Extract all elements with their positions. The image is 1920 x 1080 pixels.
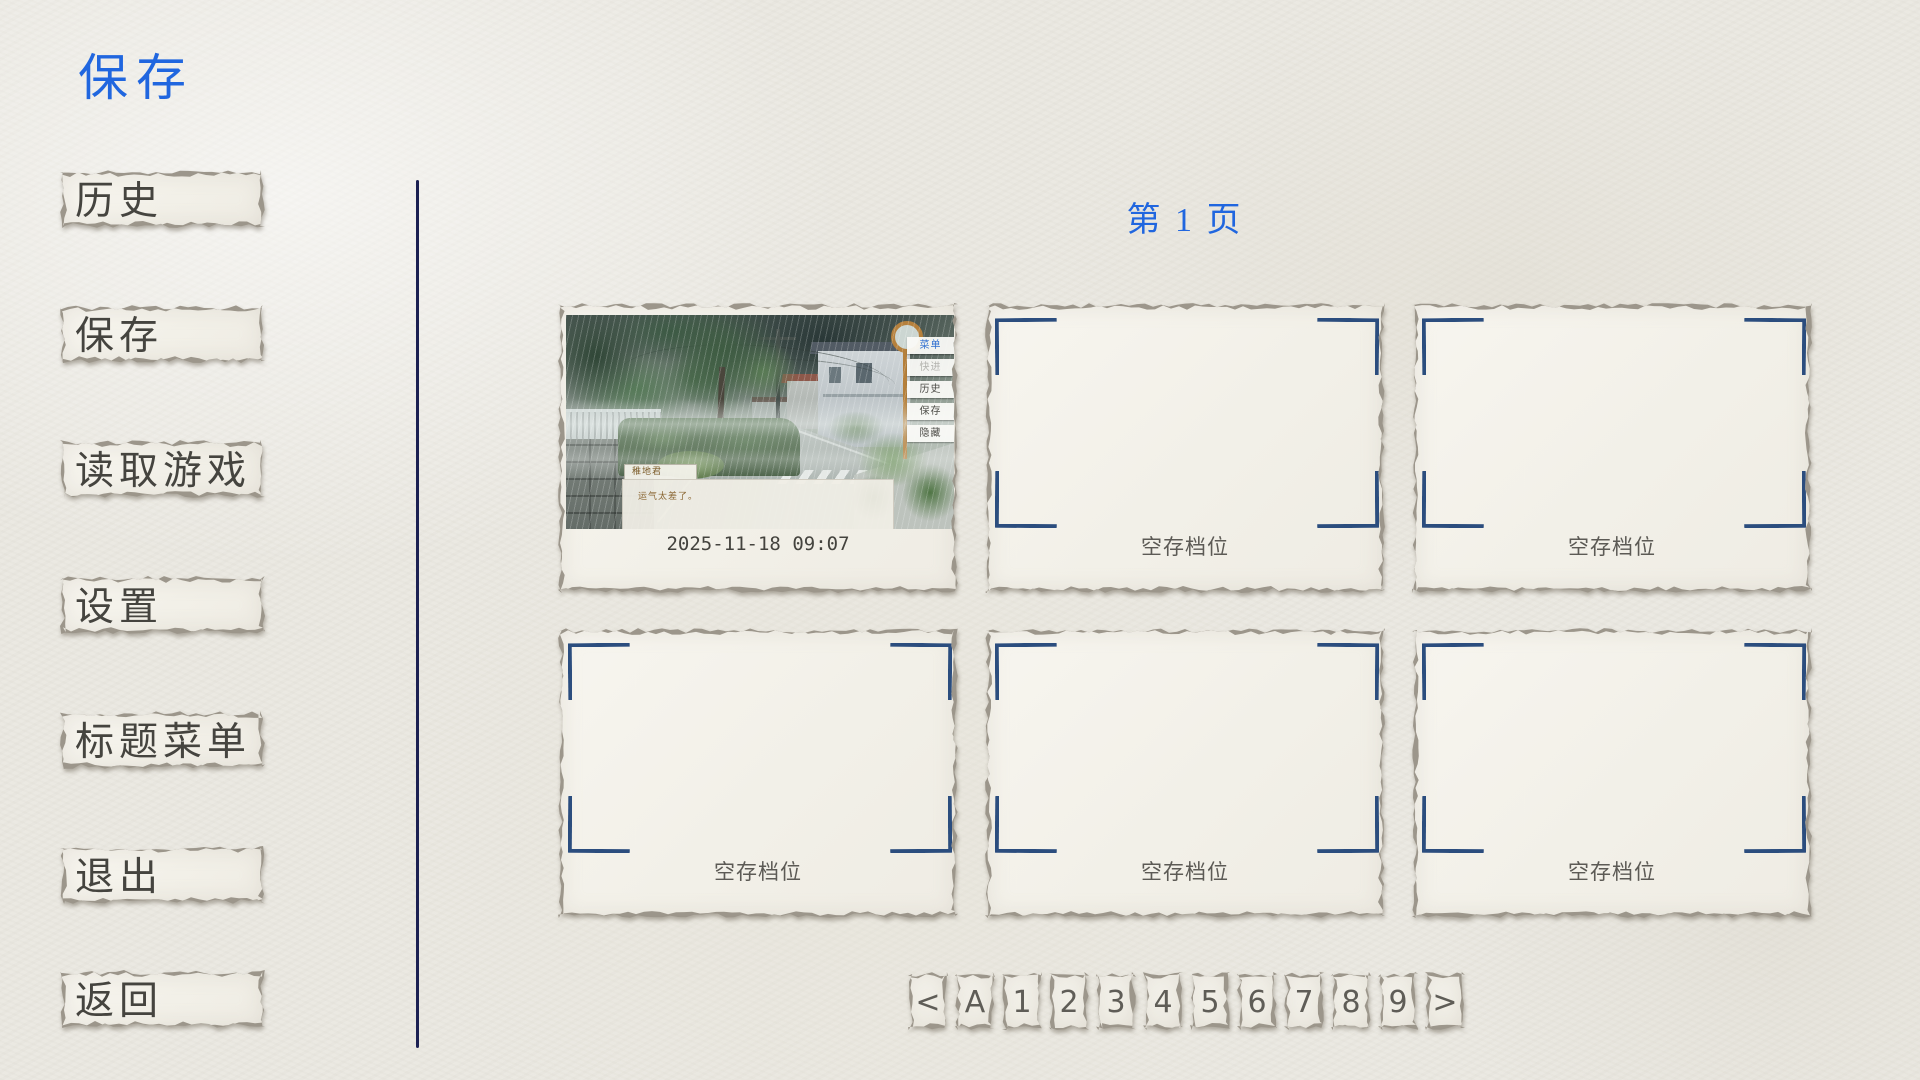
- screen-title: 保存: [78, 38, 194, 110]
- page-button-label: 7: [1286, 985, 1322, 1020]
- empty-thumbnail-area: [1420, 316, 1808, 530]
- thumb-quick-menu: 菜单 快进 历史 保存 隐藏: [907, 337, 954, 447]
- empty-slot-label: 空存档位: [560, 856, 956, 886]
- page-2-button[interactable]: 2: [1049, 972, 1089, 1030]
- corner-bracket-icon: [890, 796, 952, 853]
- page-number-label: 第 1 页: [1050, 192, 1320, 241]
- save-slot-5[interactable]: 空存档位: [985, 628, 1385, 918]
- page-1-button[interactable]: 1: [1002, 972, 1042, 1030]
- empty-slot-label: 空存档位: [1414, 856, 1810, 886]
- corner-bracket-icon: [1317, 471, 1379, 528]
- corner-bracket-icon: [995, 796, 1057, 853]
- corner-bracket-icon: [568, 643, 630, 700]
- save-slot-timestamp: 2025-11-18 09:07: [560, 533, 956, 555]
- save-screen: { "window": { "title": "保存" }, "sidebar"…: [0, 0, 1920, 1080]
- sidebar-item-quit[interactable]: 退出: [60, 846, 265, 904]
- page-7-button[interactable]: 7: [1284, 972, 1324, 1030]
- sidebar-item-label: 标题菜单: [62, 713, 263, 765]
- page-button-label: 8: [1333, 985, 1369, 1020]
- empty-slot-label: 空存档位: [1414, 531, 1810, 561]
- thumb-dialogue-box: 运气太差了。: [622, 479, 894, 529]
- corner-bracket-icon: [1317, 643, 1379, 700]
- save-thumbnail: 菜单 快进 历史 保存 隐藏 稚地君 运气太差了。: [566, 315, 954, 529]
- save-slot-1[interactable]: 菜单 快进 历史 保存 隐藏 稚地君 运气太差了。 2025-11-18 09:…: [558, 303, 958, 593]
- page-9-button[interactable]: 9: [1378, 972, 1418, 1030]
- page-next-button[interactable]: >: [1425, 972, 1465, 1030]
- sidebar-item-label: 退出: [62, 848, 263, 900]
- corner-bracket-icon: [995, 318, 1057, 375]
- sidebar-item-settings[interactable]: 设置: [60, 576, 265, 634]
- corner-bracket-icon: [1744, 643, 1806, 700]
- corner-bracket-icon: [1744, 796, 1806, 853]
- page-8-button[interactable]: 8: [1331, 972, 1371, 1030]
- page-prev-button[interactable]: <: [908, 972, 948, 1030]
- save-slot-2[interactable]: 空存档位: [985, 303, 1385, 593]
- page-button-label: <: [910, 985, 946, 1020]
- empty-thumbnail-area: [1420, 641, 1808, 855]
- sidebar-item-label: 读取游戏: [62, 442, 263, 494]
- page-button-label: >: [1427, 985, 1463, 1020]
- corner-bracket-icon: [1317, 796, 1379, 853]
- sidebar-item-load[interactable]: 读取游戏: [60, 440, 265, 498]
- thumb-dialogue-text: 运气太差了。: [638, 489, 893, 502]
- thumb-menu-button: 菜单: [907, 337, 954, 354]
- page-button-label: 1: [1004, 985, 1040, 1020]
- corner-bracket-icon: [568, 796, 630, 853]
- corner-bracket-icon: [1422, 471, 1484, 528]
- page-button-label: 3: [1098, 985, 1134, 1020]
- thumb-hide-button: 隐藏: [907, 425, 954, 442]
- sidebar-item-main-menu[interactable]: 标题菜单: [60, 711, 265, 769]
- corner-bracket-icon: [995, 471, 1057, 528]
- sidebar-item-history[interactable]: 历史: [60, 170, 265, 228]
- sidebar-item-label: 历史: [62, 172, 263, 224]
- corner-bracket-icon: [1422, 643, 1484, 700]
- empty-thumbnail-area: [993, 641, 1381, 855]
- empty-thumbnail-area: [566, 641, 954, 855]
- corner-bracket-icon: [995, 643, 1057, 700]
- save-slot-3[interactable]: 空存档位: [1412, 303, 1812, 593]
- page-auto-button[interactable]: A: [955, 972, 995, 1030]
- page-button-label: 9: [1380, 985, 1416, 1020]
- sidebar-item-return[interactable]: 返回: [60, 970, 265, 1028]
- sidebar-item-label: 返回: [62, 972, 263, 1024]
- thumb-speaker-name: 稚地君: [624, 464, 697, 480]
- empty-slot-label: 空存档位: [987, 856, 1383, 886]
- sidebar-item-label: 保存: [62, 307, 263, 359]
- page-button-label: 5: [1192, 985, 1228, 1020]
- corner-bracket-icon: [1422, 796, 1484, 853]
- sidebar-divider: [416, 180, 419, 1048]
- sidebar-item-save[interactable]: 保存: [60, 305, 265, 363]
- thumb-history-button: 历史: [907, 381, 954, 398]
- page-6-button[interactable]: 6: [1237, 972, 1277, 1030]
- page-3-button[interactable]: 3: [1096, 972, 1136, 1030]
- corner-bracket-icon: [1744, 318, 1806, 375]
- page-button-label: 4: [1145, 985, 1181, 1020]
- empty-thumbnail-area: [993, 316, 1381, 530]
- empty-slot-label: 空存档位: [987, 531, 1383, 561]
- page-button-label: 2: [1051, 985, 1087, 1020]
- corner-bracket-icon: [1422, 318, 1484, 375]
- page-button-label: 6: [1239, 985, 1275, 1020]
- corner-bracket-icon: [890, 643, 952, 700]
- corner-bracket-icon: [1744, 471, 1806, 528]
- corner-bracket-icon: [1317, 318, 1379, 375]
- save-slot-6[interactable]: 空存档位: [1412, 628, 1812, 918]
- page-button-label: A: [957, 985, 993, 1020]
- save-slot-4[interactable]: 空存档位: [558, 628, 958, 918]
- page-4-button[interactable]: 4: [1143, 972, 1183, 1030]
- thumb-save-button: 保存: [907, 403, 954, 420]
- thumb-skip-button: 快进: [907, 359, 954, 376]
- sidebar-item-label: 设置: [62, 578, 263, 630]
- page-5-button[interactable]: 5: [1190, 972, 1230, 1030]
